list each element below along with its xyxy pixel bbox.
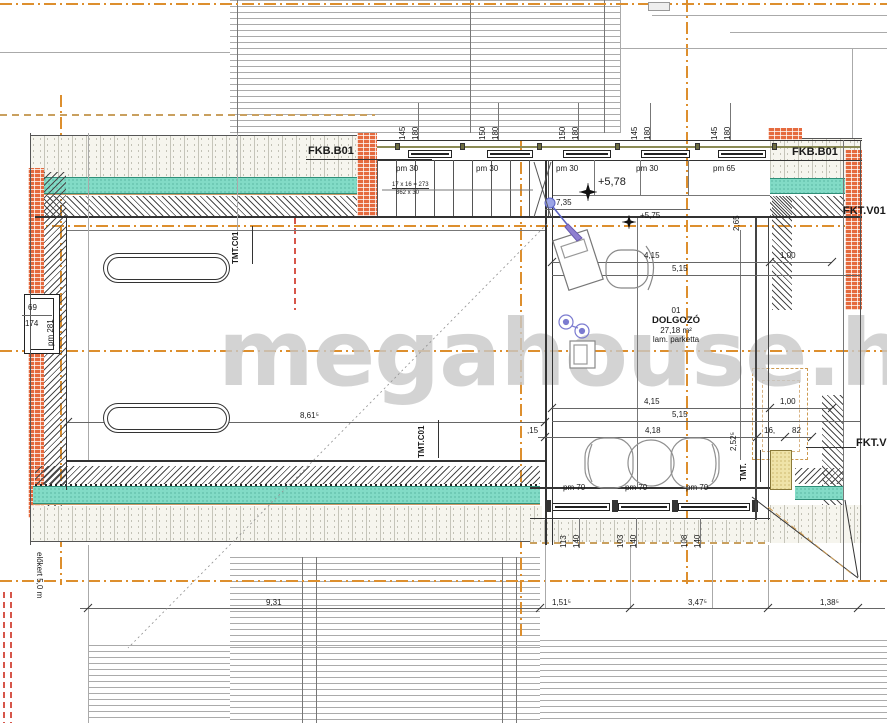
boundary-dashed [10, 592, 12, 723]
parapet-line [552, 195, 770, 196]
dim-value: 1,00 [780, 397, 796, 406]
interior-line [637, 218, 638, 487]
context-line [712, 545, 713, 608]
boundary-dashed [3, 592, 5, 723]
right-small-hatch [795, 468, 843, 484]
window-symbol [641, 150, 690, 158]
bottom-right-stipple [770, 505, 862, 543]
office-chair [606, 250, 648, 288]
dim-value: 5,15 [672, 264, 688, 273]
dim-value: 180 [491, 127, 500, 140]
wall-tag: FKT.V01 [843, 205, 886, 217]
parapet-edge [530, 518, 770, 519]
dim-value: 150 [478, 127, 487, 140]
context-line [0, 52, 230, 53]
dim-line [552, 421, 860, 422]
context-line [768, 545, 769, 608]
wall-tag-leader [790, 160, 860, 161]
interior-line [237, 133, 238, 230]
inner-face-left [66, 216, 67, 490]
wall-tag-leader [806, 447, 856, 448]
window-symbol [618, 503, 670, 511]
parapet-post [688, 160, 689, 196]
stair-note: 17 x 16 = 273 [392, 182, 429, 189]
room-area: 27,18 m² [616, 326, 736, 335]
roof-fixture [648, 2, 670, 11]
right-partition [768, 218, 769, 520]
dim-line [80, 608, 885, 609]
right-insulation-soft [770, 450, 792, 490]
dim-value: 69 [28, 303, 37, 312]
mullion-post [460, 143, 465, 150]
section-line-vertical [686, 0, 688, 585]
interior-line [88, 133, 89, 460]
mullion-post [695, 143, 700, 150]
context-line [620, 48, 887, 49]
level-value: +5,75 [640, 211, 660, 220]
room-label: 01 DOLGOZÓ 27,18 m² lam. parketta [616, 306, 736, 344]
dim-value: 150 [558, 127, 567, 140]
wall-inner-face [66, 460, 545, 462]
armchair-left [585, 438, 633, 488]
dim-value: 4,18 [645, 426, 661, 435]
dim-value: 113 [559, 535, 568, 548]
interior-line [66, 230, 545, 231]
top-wall-membrane [35, 194, 377, 195]
bottom-wall-membrane [33, 504, 540, 505]
facade-line [377, 140, 862, 141]
section-line [0, 3, 887, 5]
dim-value: 140 [629, 535, 638, 548]
bottom-wall-insulation [33, 486, 540, 504]
dim-line [552, 262, 832, 263]
roof-hatch-bottom-right [540, 640, 887, 723]
mullion-post [395, 143, 400, 150]
parapet-post [594, 160, 595, 196]
setback-label: előkert 5,0 m [35, 552, 44, 598]
context-line [652, 15, 887, 16]
dim-value: ,15 [527, 426, 538, 435]
window-symbol [487, 150, 533, 158]
wall-tag-leader [252, 226, 253, 264]
dim-value-vertical: 2,52⁵ [729, 432, 738, 451]
context-line [630, 545, 631, 608]
pm-label: pm 65 [713, 164, 735, 173]
window-symbol [678, 503, 750, 511]
dim-value: 180 [723, 127, 732, 140]
dim-line [552, 275, 860, 276]
dim-value: 145 [710, 127, 719, 140]
room-floor: lam. parketta [616, 335, 736, 344]
top-wall-hatch [35, 196, 377, 216]
right-small-insulation [795, 486, 843, 500]
room-number: 01 [616, 306, 736, 315]
dim-value: 180 [643, 127, 652, 140]
roof-edge [88, 645, 540, 646]
dim-value: 174 [25, 319, 38, 328]
mullion-post [537, 143, 542, 150]
wall-tag: FKB.B01 [308, 145, 354, 157]
corner-masonry [768, 128, 802, 140]
dim-value: 4,15 [644, 251, 660, 260]
window-symbol [552, 503, 610, 511]
pm-label: pm 70 [625, 483, 647, 492]
outline-left [30, 133, 31, 545]
boundary-dashed [294, 218, 296, 310]
roof-line [470, 0, 471, 133]
floor-plan: megahouse.hu [0, 0, 887, 723]
dim-value-vertical: 2,65 [732, 215, 741, 231]
room-name: DOLGOZÓ [616, 315, 736, 326]
armchair-right-back [712, 444, 716, 482]
dim-value: 108 [680, 535, 689, 548]
wall-tag-vertical: TMT. [739, 463, 748, 481]
wall-tag-vertical: TMT.C01 [231, 232, 240, 264]
dim-value: 140 [693, 535, 702, 548]
wall-tag-leader [760, 450, 761, 482]
interior-line [740, 230, 741, 460]
roof-line [620, 0, 621, 133]
setback-line [0, 114, 375, 116]
right-partition [755, 218, 757, 520]
dim-value: 3,47⁵ [688, 598, 707, 607]
mullion-post [615, 143, 620, 150]
dim-value: 9,31 [266, 598, 282, 607]
pm-label-vertical: pm 281 [46, 319, 55, 346]
window-post [612, 500, 618, 512]
pm-label: pm 70 [563, 483, 585, 492]
top-wall-insulation [35, 177, 377, 194]
dim-line [545, 209, 690, 210]
wall-tag-leader [306, 159, 432, 160]
dim-value: 5,15 [672, 410, 688, 419]
bed-upper [103, 253, 230, 283]
roof-line [604, 0, 605, 133]
dim-value: 180 [411, 127, 420, 140]
dim-line [538, 437, 812, 438]
wall-tag-leader [775, 217, 843, 218]
context-line [88, 545, 89, 723]
level-value: +5,78 [598, 176, 626, 188]
dim-value: 16, [764, 426, 775, 435]
window-symbol [563, 150, 611, 158]
bottom-wall-stipple [30, 506, 542, 542]
dim-value: 1,38⁵ [820, 598, 839, 607]
dim-value: 7,35 [556, 198, 572, 207]
dim-value: 4,15 [644, 397, 660, 406]
stair-wall-column [357, 133, 377, 216]
wall-tag-vertical: TMT.C01 [417, 426, 426, 458]
pm-label: pm 70 [686, 483, 708, 492]
bed-lower [103, 403, 230, 433]
dim-value: 145 [398, 127, 407, 140]
dim-value: 145 [630, 127, 639, 140]
window-post [672, 500, 678, 512]
armchair-right [671, 438, 719, 488]
context-line [545, 545, 546, 608]
dim-value: 140 [572, 535, 581, 548]
context-line [730, 32, 887, 33]
roof-hatch-bottom-left [88, 645, 230, 723]
bottom-wall-hatch [35, 466, 540, 484]
dim-value: 8,61⁵ [300, 411, 319, 420]
coffee-table [628, 440, 674, 486]
dim-value: 1,00 [780, 251, 796, 260]
context-line [852, 48, 853, 140]
armchair-left-back [588, 444, 592, 482]
dim-value: 82 [792, 426, 801, 435]
pm-label: pm 30 [556, 164, 578, 173]
wall-tag: FKB.B01 [792, 146, 838, 158]
dim-line [22, 315, 52, 316]
partition-wall [545, 160, 547, 545]
dim-value: 1,51⁵ [552, 598, 571, 607]
dim-value: 103 [616, 535, 625, 548]
section-line [0, 580, 887, 582]
stair-note: 862 x 30 [396, 190, 419, 196]
pm-label: pm 30 [636, 164, 658, 173]
pm-label: pm 30 [396, 164, 418, 173]
pm-label: pm 30 [476, 164, 498, 173]
desk-upper [553, 230, 603, 291]
window-symbol [718, 150, 766, 158]
window-symbol [408, 150, 452, 158]
dim-line [552, 408, 832, 409]
dim-value: 180 [571, 127, 580, 140]
mullion-post [772, 143, 777, 150]
wall-tag-leader [438, 420, 439, 458]
partition-wall [552, 160, 553, 545]
wall-tag: FKT.V01 [856, 437, 887, 449]
